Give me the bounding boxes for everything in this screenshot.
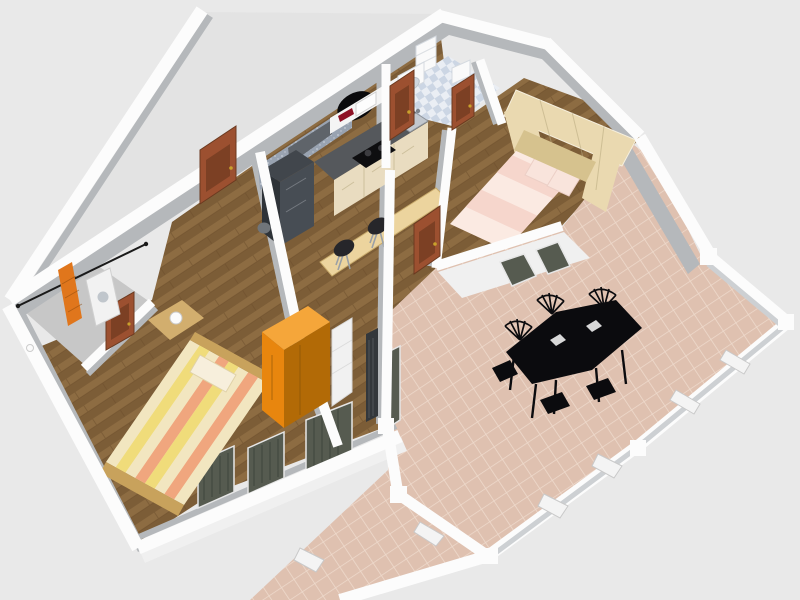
pillar-3 bbox=[630, 440, 646, 456]
stool2-seat bbox=[365, 214, 392, 238]
ladder-rungs bbox=[62, 276, 82, 312]
wardrobe2-left-column bbox=[504, 98, 544, 166]
nightstand bbox=[148, 300, 204, 340]
kitchen-living-hall-floor bbox=[260, 30, 452, 444]
planter-box-5 bbox=[414, 522, 444, 546]
table-lamp bbox=[170, 312, 182, 324]
bed2-pillow-1 bbox=[525, 156, 560, 186]
balcony-wall bbox=[84, 302, 152, 368]
window-slats bbox=[204, 409, 338, 500]
bedroom2-glass-panel-1 bbox=[536, 242, 570, 274]
bedroom1-east-wall-face bbox=[253, 156, 331, 448]
bathroom-east-wall-face bbox=[474, 62, 496, 124]
kitchen-backsplash bbox=[258, 104, 352, 190]
pillar-2 bbox=[778, 314, 794, 330]
toilet-seat bbox=[454, 86, 467, 98]
curtained-window-1 bbox=[198, 446, 234, 508]
sink-cabinet bbox=[398, 62, 424, 96]
kitchen-sink bbox=[398, 113, 428, 132]
glass-door-south bbox=[306, 402, 352, 474]
living-east-wall bbox=[386, 170, 390, 428]
floorplan-render bbox=[0, 0, 800, 600]
place-setting-1 bbox=[550, 334, 566, 346]
bathroom-floor bbox=[400, 56, 500, 126]
wardrobe2-bridge-over-bed bbox=[514, 130, 596, 182]
chair-fan-3 bbox=[589, 287, 616, 308]
bathroom-north-wall bbox=[440, 16, 548, 44]
cabinet-seams bbox=[342, 144, 414, 198]
bed1-pillow bbox=[190, 355, 236, 392]
sink-knob bbox=[408, 76, 411, 79]
cabinet-fronts bbox=[334, 122, 428, 216]
trash-bin bbox=[258, 223, 271, 234]
north-wall bbox=[10, 14, 444, 300]
sink-faucet bbox=[402, 78, 406, 82]
line-end-2 bbox=[144, 242, 148, 246]
balcony-wall-face bbox=[88, 308, 156, 374]
radiator-fins bbox=[369, 338, 373, 418]
bar-stool-2 bbox=[365, 214, 392, 248]
fridge-top bbox=[262, 150, 314, 182]
stool2-legs bbox=[370, 229, 384, 248]
fridge-front bbox=[262, 170, 280, 246]
north-wall-face bbox=[16, 28, 446, 312]
door-hall-west bbox=[390, 70, 414, 140]
south-wall-inner-face bbox=[132, 426, 396, 540]
bed1-foot-frame bbox=[100, 462, 184, 516]
extractor-hood bbox=[288, 120, 332, 164]
south-windows bbox=[198, 402, 352, 508]
microwave bbox=[356, 92, 376, 116]
pillar-6 bbox=[378, 418, 394, 434]
dining-chair-west bbox=[492, 360, 518, 382]
white-shelf-unit bbox=[332, 318, 352, 406]
bottle-3 bbox=[394, 85, 399, 90]
bed1-stripe-d bbox=[164, 372, 258, 499]
door-knob-2 bbox=[127, 322, 130, 325]
dining-chair-south-1 bbox=[540, 392, 570, 414]
terrace-glass-door bbox=[388, 346, 400, 428]
bed2-base bbox=[450, 138, 584, 250]
orange-wardrobe bbox=[262, 306, 330, 428]
place-setting-2 bbox=[586, 320, 602, 332]
bed1-headboard bbox=[190, 332, 273, 383]
planter-box-4 bbox=[538, 494, 568, 518]
dining-table bbox=[506, 300, 642, 384]
washer-door bbox=[98, 292, 109, 303]
parapet-ne-face bbox=[708, 264, 782, 326]
parapet-pillars bbox=[378, 248, 794, 564]
door-bedroom2 bbox=[414, 206, 440, 274]
bar-stool-1 bbox=[331, 236, 358, 270]
dining-chairs-fanbacks bbox=[505, 287, 616, 340]
radiator bbox=[366, 328, 378, 422]
pillar-4 bbox=[482, 548, 498, 564]
clothes-line bbox=[18, 244, 146, 306]
wardrobe2-top-band bbox=[504, 90, 636, 166]
parapet-se bbox=[340, 322, 788, 600]
toilet-bowl bbox=[449, 81, 473, 103]
door-panel-1 bbox=[206, 144, 230, 192]
bathroom-north-wall-face bbox=[438, 26, 546, 54]
sink-basin bbox=[400, 75, 421, 94]
parapets bbox=[340, 258, 788, 600]
planter-box-2 bbox=[670, 390, 700, 414]
door-knob-1 bbox=[229, 166, 233, 170]
pillar-5 bbox=[390, 486, 407, 503]
step-ladder bbox=[58, 262, 82, 326]
legs bbox=[510, 350, 626, 418]
planter-box-1 bbox=[720, 350, 750, 374]
toilet-tank bbox=[452, 60, 470, 84]
bed1-stripe-a bbox=[116, 345, 210, 472]
curtained-window-2 bbox=[248, 432, 284, 494]
bedroom2-floor bbox=[436, 78, 640, 268]
wardrobe1-front bbox=[262, 332, 284, 428]
wardrobe2-right-column bbox=[582, 150, 620, 212]
dining-chair-south-2 bbox=[586, 378, 616, 400]
bedroom2-west-wall-face bbox=[429, 130, 445, 266]
pink-double-bed bbox=[450, 130, 596, 250]
door-panel-2 bbox=[111, 303, 129, 340]
east-outer-wall-face bbox=[538, 48, 632, 142]
bar-counter bbox=[320, 188, 448, 276]
kitchen-unit bbox=[262, 72, 428, 246]
black-oval-rug bbox=[332, 85, 380, 127]
bedroom1-floor bbox=[32, 159, 338, 542]
door-knob-4 bbox=[468, 104, 471, 107]
parapet-boxes bbox=[294, 350, 750, 572]
washing-machine bbox=[86, 268, 120, 326]
chair-fan-1 bbox=[505, 319, 532, 340]
terrace-tall-wall bbox=[640, 137, 712, 258]
bed1-stripe-b bbox=[135, 356, 229, 483]
bathroom-fixtures bbox=[398, 36, 473, 103]
wall-tops bbox=[8, 10, 712, 548]
bed2-stripe-b bbox=[466, 190, 538, 233]
wall-faces bbox=[16, 16, 632, 550]
wall-shelf bbox=[330, 72, 406, 134]
line-end-1 bbox=[16, 304, 20, 308]
stool1-legs bbox=[336, 251, 350, 270]
cabinet-shelf-lines bbox=[416, 46, 436, 66]
3d-floorplan-viewport[interactable] bbox=[0, 0, 800, 600]
detergent-bottle bbox=[27, 345, 34, 352]
shelf-unit-shelves bbox=[332, 340, 352, 374]
door-knob-5 bbox=[433, 242, 437, 246]
door-panel-3 bbox=[395, 85, 409, 130]
terrace-floor bbox=[250, 142, 780, 600]
parapet-se-face bbox=[486, 328, 782, 560]
bedroom2-south-wall bbox=[436, 226, 562, 266]
burner-2 bbox=[378, 145, 384, 151]
parapet-inner-faces bbox=[486, 264, 782, 560]
bottle-1 bbox=[382, 92, 387, 97]
bathroom-tall-cabinet bbox=[416, 36, 436, 76]
pillar-1 bbox=[700, 248, 717, 265]
bedroom2-south-wall-sunlit-face bbox=[438, 232, 590, 298]
doors bbox=[106, 70, 474, 350]
balcony-floor bbox=[16, 256, 150, 366]
bed2-stripe-a bbox=[497, 155, 569, 198]
balcony-items bbox=[16, 242, 148, 352]
bed1-stripe-c bbox=[145, 361, 239, 488]
bedroom2-glass-panel-2 bbox=[500, 254, 536, 286]
parapet-ne bbox=[712, 258, 788, 322]
planter-box-6 bbox=[294, 548, 324, 572]
south-outer-wall bbox=[138, 436, 400, 548]
south-wall-sunlit-face bbox=[142, 444, 404, 556]
striped-double-bed bbox=[100, 332, 273, 516]
chair-fan-2 bbox=[537, 293, 564, 314]
background bbox=[0, 0, 800, 600]
dining-set bbox=[492, 287, 642, 418]
table-and-chair-legs bbox=[510, 350, 626, 418]
cooktop bbox=[352, 140, 396, 168]
bedroom2-west-wall bbox=[436, 128, 452, 268]
door-panel-4 bbox=[456, 85, 470, 122]
west-wing-wall-face bbox=[20, 16, 210, 304]
west-wing-wall bbox=[10, 10, 202, 300]
wardrobe1-top bbox=[262, 306, 330, 350]
oven-handles bbox=[286, 178, 306, 212]
burner-1 bbox=[365, 150, 372, 157]
west-outer-wall bbox=[8, 306, 138, 548]
fridge-side bbox=[280, 162, 314, 246]
door-panel-5 bbox=[419, 221, 435, 264]
bed2-pillow-2 bbox=[547, 168, 580, 196]
living-east-wall-face bbox=[380, 172, 384, 424]
unfurnished-room-floor bbox=[12, 12, 444, 298]
wine-art-panel bbox=[338, 108, 354, 122]
bridge-wardrobe bbox=[504, 90, 636, 212]
bathroom-east-wall bbox=[480, 60, 502, 124]
wardrobe2-door-seams bbox=[540, 100, 604, 190]
wardrobe1-seams bbox=[272, 345, 300, 415]
door-knob-3 bbox=[407, 110, 411, 114]
bedroom1-east-wall bbox=[260, 152, 338, 446]
planter-box-3 bbox=[592, 454, 622, 478]
parapet-sw bbox=[388, 432, 488, 556]
terrace-tall-wall-face bbox=[620, 148, 700, 274]
faucet bbox=[416, 109, 420, 113]
east-outer-wall bbox=[546, 42, 640, 136]
west-outer-wall-face bbox=[18, 308, 142, 550]
door-bathroom bbox=[452, 74, 474, 130]
bed1-base bbox=[106, 340, 268, 505]
stool1-seat bbox=[331, 236, 358, 260]
door-bedroom1 bbox=[106, 292, 134, 350]
bottle-2 bbox=[388, 88, 393, 93]
wardrobe1-side bbox=[284, 322, 330, 428]
counter-top bbox=[314, 106, 428, 180]
door-north-wall bbox=[200, 126, 236, 204]
